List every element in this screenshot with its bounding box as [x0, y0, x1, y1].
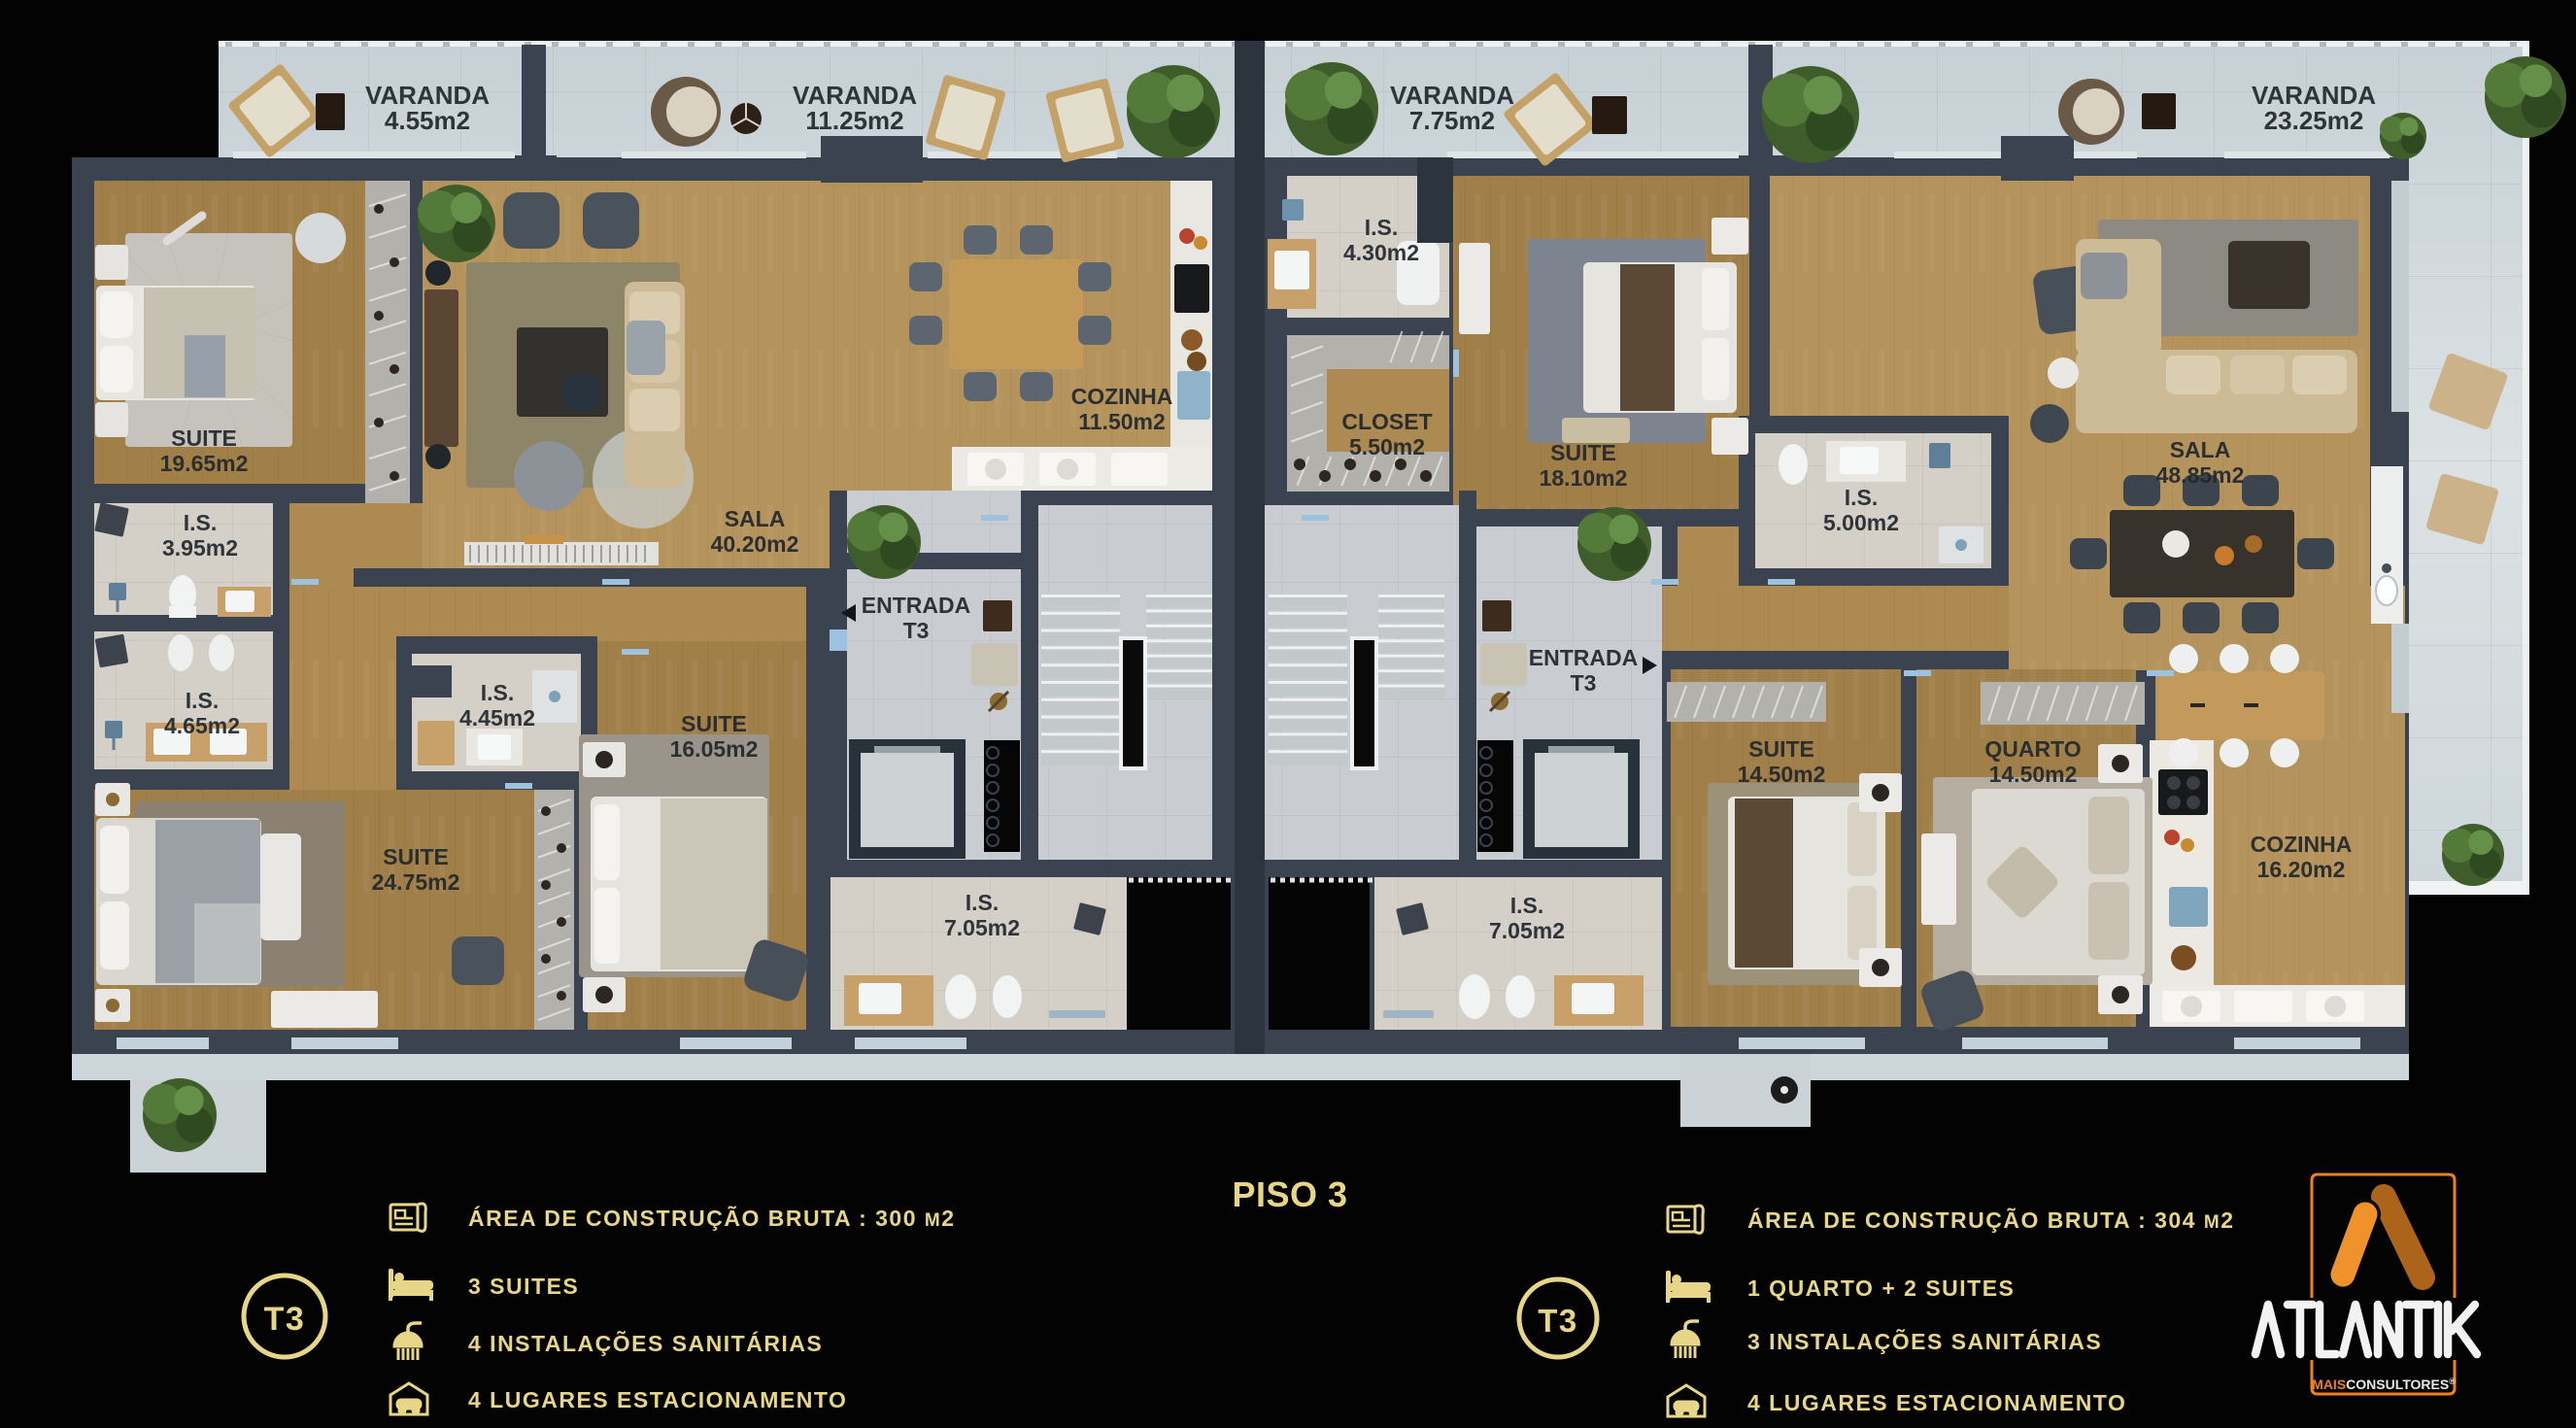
svg-text:ÁREA DE CONSTRUÇÃO BRUTA : 30: ÁREA DE CONSTRUÇÃO BRUTA : 304 M2	[1747, 1207, 2235, 1233]
svg-text:CLOSET: CLOSET	[1341, 409, 1432, 434]
svg-text:7.75m2: 7.75m2	[1409, 106, 1495, 135]
svg-text:11.50m2: 11.50m2	[1078, 409, 1166, 434]
svg-text:4.65m2: 4.65m2	[164, 713, 240, 738]
svg-text:I.S.: I.S.	[481, 680, 515, 705]
svg-text:7.05m2: 7.05m2	[1489, 918, 1565, 943]
svg-text:SUITE: SUITE	[1550, 440, 1616, 465]
svg-text:4 LUGARES ESTACIONAMENTO: 4 LUGARES ESTACIONAMENTO	[1747, 1390, 2126, 1415]
svg-text:ÁREA DE CONSTRUÇÃO BRUTA : 30: ÁREA DE CONSTRUÇÃO BRUTA : 300 M2	[468, 1205, 956, 1231]
svg-text:SUITE: SUITE	[1748, 736, 1814, 762]
svg-text:3 SUITES: 3 SUITES	[468, 1274, 579, 1299]
svg-text:T3: T3	[1571, 670, 1597, 696]
svg-text:T3: T3	[264, 1301, 306, 1338]
svg-text:4 LUGARES ESTACIONAMENTO: 4 LUGARES ESTACIONAMENTO	[468, 1387, 847, 1412]
svg-text:I.S.: I.S.	[1845, 485, 1879, 510]
svg-text:4.30m2: 4.30m2	[1343, 240, 1419, 265]
svg-text:I.S.: I.S.	[1510, 893, 1544, 918]
svg-text:I.S.: I.S.	[966, 890, 1000, 915]
svg-text:7.05m2: 7.05m2	[944, 915, 1020, 940]
svg-text:T3: T3	[1538, 1303, 1578, 1339]
svg-text:QUARTO: QUARTO	[1984, 736, 2081, 762]
svg-text:48.85m2: 48.85m2	[2156, 462, 2245, 488]
svg-text:COZINHA: COZINHA	[1071, 384, 1173, 409]
svg-text:I.S.: I.S.	[184, 510, 218, 535]
svg-text:14.50m2: 14.50m2	[1989, 762, 2078, 787]
svg-text:SUITE: SUITE	[681, 711, 747, 736]
svg-text:16.05m2: 16.05m2	[670, 736, 759, 762]
svg-text:23.25m2: 23.25m2	[2264, 106, 2364, 135]
svg-text:40.20m2: 40.20m2	[711, 531, 799, 557]
svg-text:4.45m2: 4.45m2	[459, 705, 535, 731]
svg-text:5.00m2: 5.00m2	[1823, 510, 1899, 535]
svg-text:I.S.: I.S.	[1365, 215, 1399, 240]
svg-text:SALA: SALA	[725, 506, 786, 531]
svg-text:11.25m2: 11.25m2	[805, 106, 903, 135]
svg-text:MAISCONSULTORES®: MAISCONSULTORES®	[2312, 1377, 2456, 1392]
svg-text:3 INSTALAÇÕES SANITÁRIAS: 3 INSTALAÇÕES SANITÁRIAS	[1747, 1328, 2102, 1354]
svg-text:16.20m2: 16.20m2	[2257, 857, 2346, 882]
svg-text:4 INSTALAÇÕES SANITÁRIAS: 4 INSTALAÇÕES SANITÁRIAS	[468, 1330, 823, 1356]
svg-text:ENTRADA: ENTRADA	[862, 593, 970, 618]
svg-text:18.10m2: 18.10m2	[1540, 465, 1628, 491]
svg-text:24.75m2: 24.75m2	[372, 869, 460, 895]
svg-text:COZINHA: COZINHA	[2251, 832, 2353, 857]
svg-text:SALA: SALA	[2170, 437, 2231, 462]
svg-text:3.95m2: 3.95m2	[162, 535, 238, 561]
svg-text:5.50m2: 5.50m2	[1349, 434, 1425, 459]
svg-text:I.S.: I.S.	[186, 688, 220, 713]
svg-text:ENTRADA: ENTRADA	[1529, 645, 1638, 670]
svg-text:PISO 3: PISO 3	[1232, 1174, 1347, 1214]
svg-text:19.65m2: 19.65m2	[160, 451, 249, 476]
svg-text:4.55m2: 4.55m2	[385, 106, 470, 135]
svg-text:T3: T3	[903, 618, 930, 643]
svg-text:SUITE: SUITE	[383, 844, 449, 869]
svg-text:14.50m2: 14.50m2	[1738, 762, 1826, 787]
svg-text:1 QUARTO + 2 SUITES: 1 QUARTO + 2 SUITES	[1747, 1275, 2015, 1301]
svg-text:SUITE: SUITE	[171, 425, 237, 451]
